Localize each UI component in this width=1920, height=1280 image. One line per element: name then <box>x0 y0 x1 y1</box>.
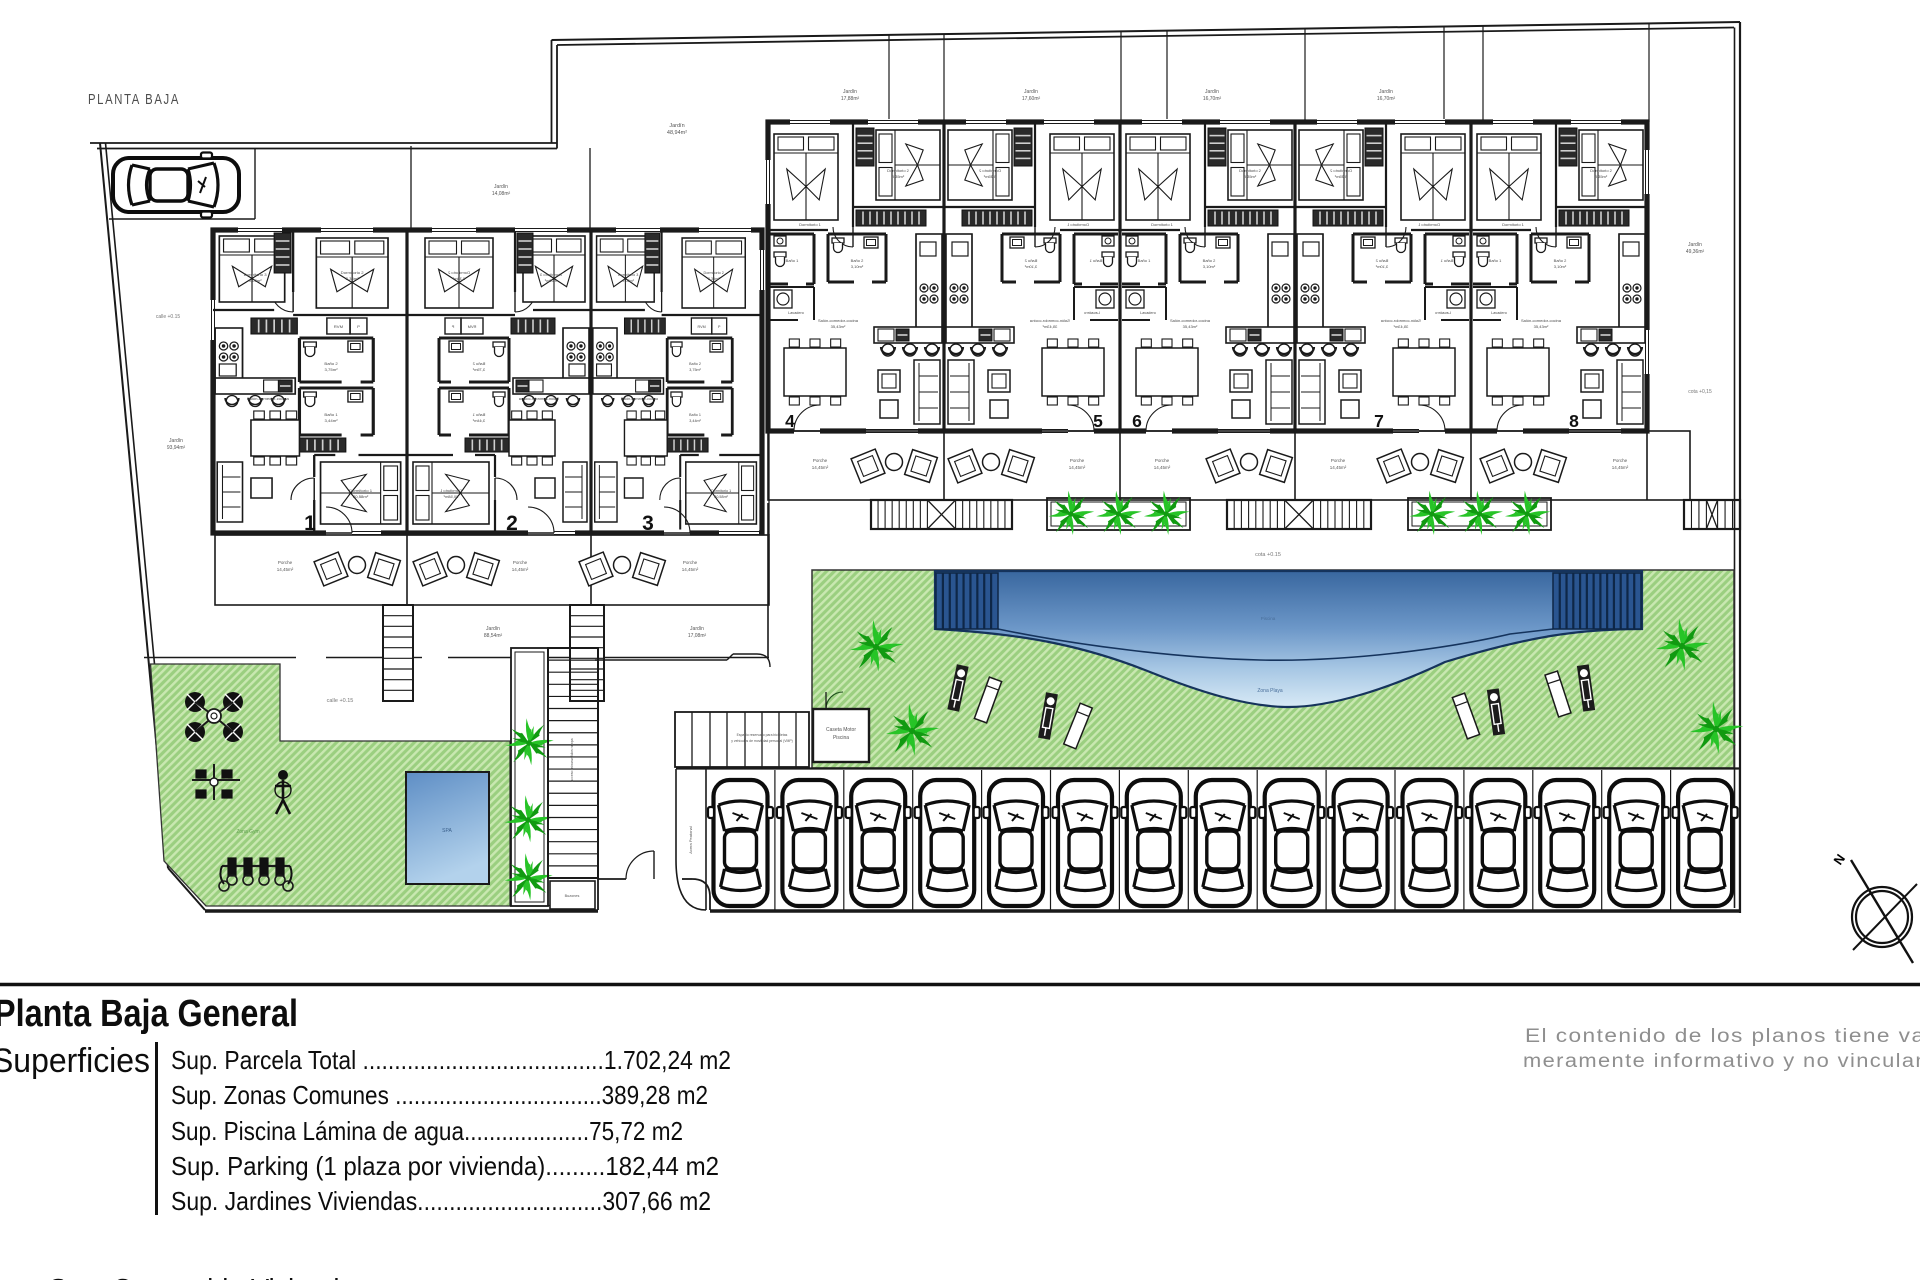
svg-text:Baño 2: Baño 2 <box>689 362 701 366</box>
svg-text:Jardín: Jardín <box>1205 89 1219 95</box>
svg-text:35,43m²: 35,43m² <box>831 324 846 329</box>
svg-text:Jardín: Jardín <box>486 626 500 632</box>
svg-text:calle +0.15: calle +0.15 <box>156 314 181 320</box>
svg-text:3,44m²: 3,44m² <box>689 418 701 423</box>
svg-text:35,43m²: 35,43m² <box>1183 324 1198 329</box>
svg-text:14,45m²: 14,45m² <box>1069 465 1086 470</box>
svg-text:3,10m²: 3,10m² <box>1024 264 1037 269</box>
svg-text:14,45m²: 14,45m² <box>1612 465 1629 470</box>
svg-text:Porche: Porche <box>1613 458 1628 463</box>
svg-text:Baño 2: Baño 2 <box>1024 258 1037 263</box>
svg-text:Piscina: Piscina <box>833 735 849 741</box>
svg-text:3,75m²: 3,75m² <box>472 367 485 372</box>
svg-text:3,44m²: 3,44m² <box>325 418 339 423</box>
svg-text:Salón-comedor-cocina: Salón-comedor-cocina <box>1380 318 1421 323</box>
svg-text:Jardín: Jardín <box>1688 242 1702 248</box>
svg-text:Sup. Zonas Comunes ...........: Sup. Zonas Comunes .....................… <box>171 1080 708 1110</box>
svg-text:Lavadero: Lavadero <box>1084 311 1100 315</box>
svg-text:14,45m²: 14,45m² <box>512 567 529 572</box>
svg-text:16,70m²: 16,70m² <box>1203 96 1222 102</box>
svg-text:8,35m²: 8,35m² <box>708 276 720 281</box>
svg-text:cota +0.15: cota +0.15 <box>1255 552 1281 558</box>
svg-text:Espacio reservado para bicicle: Espacio reservado para bicicletas <box>737 733 788 737</box>
svg-text:Baño 2: Baño 2 <box>324 361 338 366</box>
svg-text:Sup. Construida Viviendas.....: Sup. Construida Viviendas...............… <box>49 1273 564 1280</box>
svg-text:Dormitorio 2: Dormitorio 2 <box>704 271 724 275</box>
svg-text:Zona Gym: Zona Gym <box>236 829 259 835</box>
svg-text:4: 4 <box>785 411 795 431</box>
svg-text:Baño 2: Baño 2 <box>1554 258 1567 263</box>
svg-text:Baño 1: Baño 1 <box>1138 258 1151 263</box>
svg-text:Jardín: Jardín <box>843 89 857 95</box>
svg-text:Dormitorio 2: Dormitorio 2 <box>1590 168 1613 173</box>
svg-text:Baño 2: Baño 2 <box>851 258 864 263</box>
svg-text:Jardín: Jardín <box>690 626 704 632</box>
svg-text:14,08m²: 14,08m² <box>492 191 511 197</box>
svg-text:49,36m²: 49,36m² <box>1686 249 1705 255</box>
svg-text:acceso minusválidos rampa: acceso minusválidos rampa <box>570 738 574 781</box>
svg-text:y vehículos de movilidad perso: y vehículos de movilidad personal (VMP) <box>731 739 792 743</box>
svg-text:Dormitorio 1: Dormitorio 1 <box>1066 222 1089 227</box>
svg-text:Dormitorio 2: Dormitorio 2 <box>1239 168 1262 173</box>
svg-text:Baño 2: Baño 2 <box>1203 258 1216 263</box>
svg-text:8,35m²: 8,35m² <box>892 174 905 179</box>
svg-text:SPA: SPA <box>442 828 452 834</box>
svg-text:14,45m²: 14,45m² <box>682 567 699 572</box>
svg-text:Baño 1: Baño 1 <box>1089 258 1102 263</box>
svg-text:8,35m²: 8,35m² <box>346 276 360 281</box>
svg-text:cota +0,15: cota +0,15 <box>1688 389 1712 395</box>
svg-text:Acera Peatonal: Acera Peatonal <box>688 826 693 853</box>
svg-text:Salón-comedor-cocina: Salón-comedor-cocina <box>1170 318 1211 323</box>
svg-text:3,10m²: 3,10m² <box>1554 264 1567 269</box>
svg-text:48,94m²: 48,94m² <box>667 130 687 136</box>
svg-text:Baño 1: Baño 1 <box>324 412 338 417</box>
svg-text:P: P <box>451 324 454 329</box>
svg-text:6: 6 <box>1132 411 1142 431</box>
svg-text:Jardín: Jardín <box>669 123 684 129</box>
svg-text:3,10m²: 3,10m² <box>851 264 864 269</box>
svg-text:35,43m²: 35,43m² <box>1534 324 1549 329</box>
svg-text:Baño 2: Baño 2 <box>1375 258 1388 263</box>
svg-text:35,43m²: 35,43m² <box>1393 324 1408 329</box>
svg-text:Porche: Porche <box>1070 458 1085 463</box>
svg-text:calle +0.15: calle +0.15 <box>327 698 354 704</box>
svg-text:PLANTA BAJA: PLANTA BAJA <box>88 91 180 108</box>
svg-text:Porche: Porche <box>1155 458 1170 463</box>
svg-text:17,08m²: 17,08m² <box>688 633 707 639</box>
svg-text:Jardín: Jardín <box>169 438 183 444</box>
svg-text:Jardín: Jardín <box>1024 89 1038 95</box>
svg-text:Sup. Parking (1 plaza por vivi: Sup. Parking (1 plaza por vivienda).....… <box>171 1151 719 1181</box>
svg-text:3,75m²: 3,75m² <box>689 367 701 372</box>
svg-text:3,44m²: 3,44m² <box>472 418 485 423</box>
svg-text:Dormitorio 1: Dormitorio 1 <box>1502 222 1525 227</box>
svg-text:Salón-comedor-cocina: Salón-comedor-cocina <box>518 396 559 401</box>
svg-text:20,58m²: 20,58m² <box>714 494 728 499</box>
svg-text:14,45m²: 14,45m² <box>277 567 294 572</box>
svg-text:Lavadero: Lavadero <box>1140 311 1156 315</box>
svg-text:Sup. Jardines Viviendas.......: Sup. Jardines Viviendas.................… <box>171 1186 711 1216</box>
svg-text:35,43m²: 35,43m² <box>1042 324 1057 329</box>
svg-text:Dormitorio 1: Dormitorio 1 <box>349 488 373 493</box>
svg-text:9,03m²: 9,03m² <box>544 278 557 283</box>
svg-text:17,60m²: 17,60m² <box>1022 96 1041 102</box>
svg-text:Dormitorio 3: Dormitorio 3 <box>618 273 638 277</box>
svg-text:Baño 1: Baño 1 <box>786 258 799 263</box>
svg-text:Caseta Motor: Caseta Motor <box>826 727 856 733</box>
svg-text:Zona Playa: Zona Playa <box>1257 688 1283 694</box>
svg-text:9,03m²: 9,03m² <box>622 278 634 283</box>
svg-text:20,58m²: 20,58m² <box>353 494 369 499</box>
svg-text:Sup. Piscina Lámina de agua...: Sup. Piscina Lámina de agua.............… <box>171 1116 683 1146</box>
svg-text:Dormitorio 3: Dormitorio 3 <box>539 272 562 277</box>
svg-text:Baño 1: Baño 1 <box>1440 258 1453 263</box>
svg-text:Piscina: Piscina <box>1261 616 1276 621</box>
svg-text:Salón-comedor-cocina: Salón-comedor-cocina <box>621 397 659 401</box>
svg-text:8: 8 <box>1569 411 1579 431</box>
svg-text:20,58m²: 20,58m² <box>443 494 458 499</box>
svg-text:Dormitorio 1: Dormitorio 1 <box>1151 222 1174 227</box>
svg-text:Salón-comedor-cocina: Salón-comedor-cocina <box>1521 318 1562 323</box>
svg-text:8,35m²: 8,35m² <box>1334 174 1347 179</box>
svg-text:Dormitorio 1: Dormitorio 1 <box>711 489 731 493</box>
svg-text:3,10m²: 3,10m² <box>1203 264 1216 269</box>
svg-text:7: 7 <box>1374 411 1384 431</box>
svg-text:9,03m²: 9,03m² <box>249 278 263 283</box>
svg-text:Baño 1: Baño 1 <box>1489 258 1502 263</box>
svg-text:Dormitorio 2: Dormitorio 2 <box>978 168 1001 173</box>
svg-text:meramente informativo y no vin: meramente informativo y no vinculante <box>1523 1051 1920 1072</box>
svg-text:93,94m²: 93,94m² <box>167 445 186 451</box>
svg-text:El contenido de los planos tie: El contenido de los planos tiene valor <box>1525 1026 1920 1047</box>
svg-text:17,88m²: 17,88m² <box>841 96 860 102</box>
svg-text:Buzones: Buzones <box>565 894 580 898</box>
svg-text:Baño 1: Baño 1 <box>689 413 701 417</box>
svg-text:Lavadero: Lavadero <box>1435 311 1451 315</box>
svg-text:8,35m²: 8,35m² <box>1595 174 1608 179</box>
svg-text:Dormitorio 2: Dormitorio 2 <box>887 168 910 173</box>
svg-text:88,54m²: 88,54m² <box>484 633 503 639</box>
svg-text:RVM: RVM <box>334 324 344 329</box>
svg-text:P: P <box>357 324 360 329</box>
svg-text:Porche: Porche <box>278 560 293 565</box>
svg-text:Porche: Porche <box>513 560 528 565</box>
svg-text:Salón-comedor-cocina: Salón-comedor-cocina <box>247 396 290 401</box>
svg-text:Jardín: Jardín <box>494 184 508 190</box>
svg-text:3: 3 <box>642 512 654 535</box>
svg-text:8,35m²: 8,35m² <box>1244 174 1257 179</box>
svg-text:Porche: Porche <box>683 560 698 565</box>
svg-text:14,45m²: 14,45m² <box>812 465 829 470</box>
svg-text:RVM: RVM <box>697 325 705 329</box>
svg-text:Planta Baja General: Planta Baja General <box>0 993 298 1035</box>
svg-text:Porche: Porche <box>813 458 828 463</box>
svg-text:5: 5 <box>1093 411 1103 431</box>
svg-text:3,10m²: 3,10m² <box>1375 264 1388 269</box>
svg-text:RVM: RVM <box>468 324 477 329</box>
svg-text:Dormitorio 2: Dormitorio 2 <box>447 270 470 275</box>
svg-text:16,70m²: 16,70m² <box>1377 96 1396 102</box>
svg-text:Jardín: Jardín <box>1379 89 1393 95</box>
svg-text:Dormitorio 2: Dormitorio 2 <box>341 270 365 275</box>
svg-text:Lavadero: Lavadero <box>788 311 804 315</box>
svg-text:Dormitorio 1: Dormitorio 1 <box>799 222 822 227</box>
svg-text:Salón-comedor-cocina: Salón-comedor-cocina <box>818 318 859 323</box>
svg-text:P: P <box>718 325 721 329</box>
svg-text:Baño 1: Baño 1 <box>472 412 485 417</box>
svg-text:Sup. Parcela Total ...........: Sup. Parcela Total .....................… <box>171 1045 731 1075</box>
svg-text:Superficies: Superficies <box>0 1042 150 1080</box>
svg-text:2: 2 <box>506 512 518 535</box>
svg-text:14,45m²: 14,45m² <box>1154 465 1171 470</box>
svg-text:Salón-comedor-cocina: Salón-comedor-cocina <box>1029 318 1070 323</box>
svg-text:14,45m²: 14,45m² <box>1330 465 1347 470</box>
svg-text:3,75m²: 3,75m² <box>325 367 339 372</box>
svg-text:Dormitorio 2: Dormitorio 2 <box>1329 168 1352 173</box>
svg-text:Baño 2: Baño 2 <box>472 361 485 366</box>
svg-text:Lavadero: Lavadero <box>1491 311 1507 315</box>
svg-text:Dormitorio 1: Dormitorio 1 <box>1417 222 1440 227</box>
svg-text:8,35m²: 8,35m² <box>452 276 465 281</box>
svg-text:1: 1 <box>304 512 316 535</box>
svg-text:Dormitorio 3: Dormitorio 3 <box>244 272 268 277</box>
svg-text:8,35m²: 8,35m² <box>983 174 996 179</box>
svg-text:Dormitorio 1: Dormitorio 1 <box>439 488 462 493</box>
svg-text:Porche: Porche <box>1331 458 1346 463</box>
